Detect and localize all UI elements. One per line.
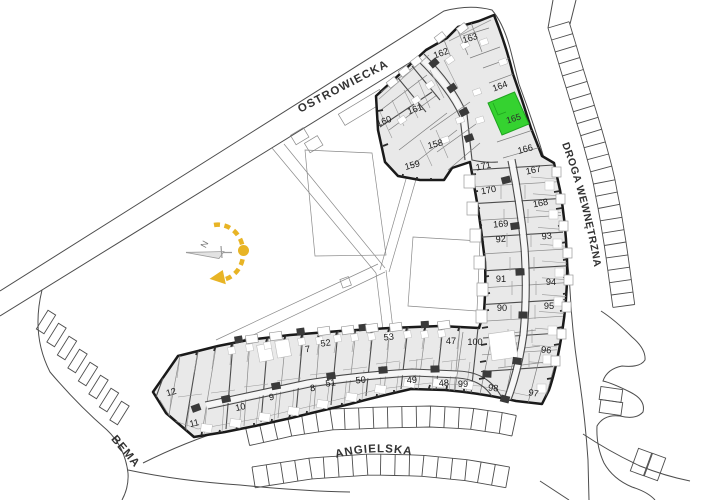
svg-text:95: 95 [544, 301, 554, 311]
svg-text:92: 92 [495, 234, 506, 245]
svg-text:96: 96 [541, 345, 552, 356]
svg-text:52: 52 [320, 337, 332, 348]
svg-text:49: 49 [406, 375, 417, 386]
svg-text:10: 10 [234, 401, 246, 413]
svg-text:90: 90 [497, 303, 507, 313]
svg-text:48: 48 [438, 378, 449, 389]
svg-text:100: 100 [467, 337, 482, 347]
svg-text:53: 53 [383, 332, 394, 343]
svg-text:97: 97 [528, 387, 540, 399]
svg-text:98: 98 [488, 383, 499, 394]
svg-text:99: 99 [458, 379, 468, 389]
svg-text:169: 169 [493, 218, 509, 229]
svg-text:94: 94 [546, 277, 556, 287]
svg-text:91: 91 [496, 274, 506, 284]
svg-text:47: 47 [446, 336, 456, 346]
svg-text:50: 50 [355, 375, 366, 386]
svg-text:51: 51 [325, 377, 337, 388]
svg-text:93: 93 [541, 231, 552, 242]
